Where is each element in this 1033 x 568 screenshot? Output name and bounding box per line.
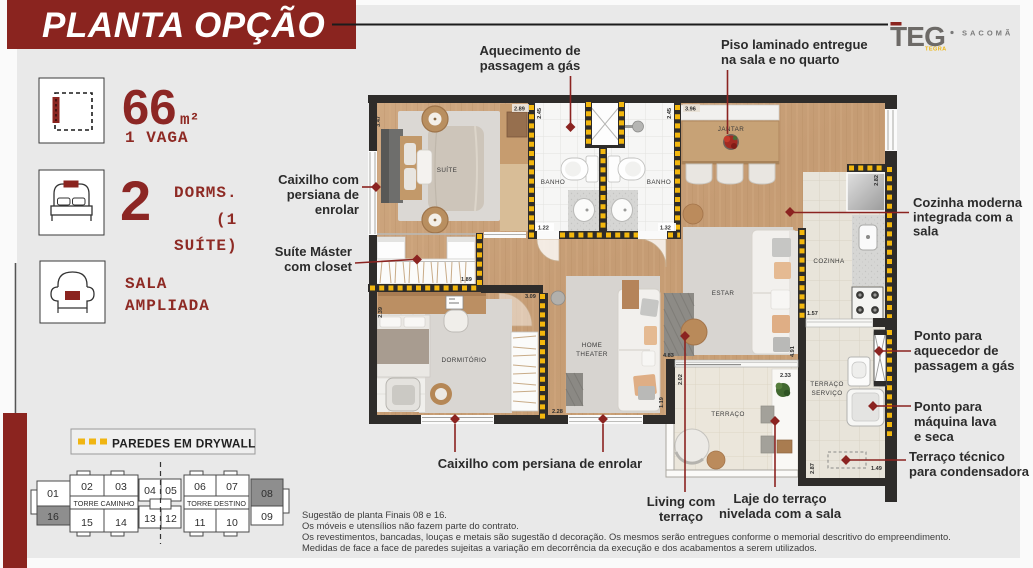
svg-text:Os móveis e utensílios não faz: Os móveis e utensílios não fazem parte d… [302,520,519,531]
svg-text:sala: sala [913,224,939,239]
svg-text:2.02: 2.02 [678,374,684,385]
svg-text:2.39: 2.39 [378,307,384,318]
svg-text:PLANTA OPÇÃO: PLANTA OPÇÃO [42,6,325,45]
svg-text:3.47: 3.47 [376,116,382,127]
svg-text:SUÍTE): SUÍTE) [174,236,238,255]
svg-text:SACOMÃ: SACOMÃ [962,29,1013,38]
svg-text:2.87: 2.87 [810,463,816,474]
svg-text:2.82: 2.82 [874,175,880,186]
svg-text:04: 04 [144,485,156,497]
svg-text:4.91: 4.91 [790,346,796,357]
svg-text:3.96: 3.96 [685,107,696,113]
svg-text:Living com: Living com [647,494,716,509]
svg-text:SALA: SALA [125,275,167,293]
svg-text:05: 05 [165,485,177,497]
svg-text:TORRE DESTINO: TORRE DESTINO [187,499,246,508]
svg-text:2.45: 2.45 [537,108,543,119]
svg-text:TERRAÇO: TERRAÇO [810,381,844,388]
svg-text:com closet: com closet [284,259,353,274]
svg-text:DORMITÓRIO: DORMITÓRIO [442,355,487,364]
svg-text:1.32: 1.32 [660,226,671,232]
svg-text:AMPLIADA: AMPLIADA [125,297,210,315]
svg-text:TORRE CAMINHO: TORRE CAMINHO [74,499,135,508]
svg-text:Piso laminado entregue: Piso laminado entregue [721,37,868,52]
svg-text:Sugestão de planta Finais 08 e: Sugestão de planta Finais 08 e 16. [302,509,447,520]
svg-text:07: 07 [226,481,238,493]
svg-text:e seca: e seca [914,429,955,444]
svg-text:11: 11 [195,517,206,529]
svg-text:aquecedor de: aquecedor de [914,343,999,358]
svg-text:2.28: 2.28 [552,409,563,415]
svg-text:16: 16 [47,511,59,523]
svg-text:Aquecimento de: Aquecimento de [479,43,580,58]
svg-text:14: 14 [115,517,127,529]
svg-text:para condensadora: para condensadora [909,464,1030,479]
svg-text:TERRAÇO: TERRAÇO [711,411,745,418]
svg-text:ESTAR: ESTAR [712,290,735,297]
svg-text:máquina lava: máquina lava [914,414,997,429]
svg-text:12: 12 [165,513,177,525]
svg-text:na sala e no quarto: na sala e no quarto [721,52,840,67]
svg-text:m²: m² [180,111,199,129]
svg-text:2.89: 2.89 [514,107,525,113]
svg-text:JANTAR: JANTAR [718,126,744,133]
svg-text:persiana de: persiana de [287,187,359,202]
svg-text:1.19: 1.19 [659,397,665,408]
svg-text:66: 66 [122,81,177,135]
svg-text:Suíte Máster: Suíte Máster [275,244,352,259]
svg-text:10: 10 [226,517,238,529]
svg-text:13: 13 [144,513,156,525]
svg-text:TEGRA: TEGRA [925,47,947,53]
svg-text:BANHO: BANHO [647,179,671,186]
svg-text:1.22: 1.22 [538,226,549,232]
svg-text:2.45: 2.45 [667,108,673,119]
svg-text:Cozinha moderna: Cozinha moderna [913,195,1023,210]
svg-text:06: 06 [194,481,206,493]
svg-text:SUÍTE: SUÍTE [437,165,458,174]
svg-text:03: 03 [115,481,127,493]
svg-text:2: 2 [120,169,151,232]
svg-text:08: 08 [261,488,273,500]
svg-text:enrolar: enrolar [315,202,359,217]
svg-text:integrada com a: integrada com a [913,210,1013,225]
svg-text:passagem a gás: passagem a gás [914,358,1014,373]
svg-text:2.33: 2.33 [780,373,791,379]
svg-text:4.83: 4.83 [663,353,674,359]
svg-text:(1: (1 [216,211,237,229]
svg-text:Ponto para: Ponto para [914,399,983,414]
svg-text:terraço: terraço [659,509,703,524]
svg-text:1.57: 1.57 [807,311,818,317]
svg-text:Terraço técnico: Terraço técnico [909,449,1005,464]
svg-text:BANHO: BANHO [541,179,565,186]
svg-text:PAREDES EM DRYWALL: PAREDES EM DRYWALL [112,437,256,451]
svg-text:COZINHA: COZINHA [813,258,845,265]
svg-text:3.09: 3.09 [525,294,536,300]
svg-text:THEATER: THEATER [576,351,608,358]
svg-text:1 VAGA: 1 VAGA [125,129,189,147]
svg-text:Medidas de face a face de pare: Medidas de face a face de paredes sujeit… [302,542,817,553]
svg-text:1.89: 1.89 [461,277,472,283]
svg-text:passagem a gás: passagem a gás [480,58,580,73]
svg-text:Caixilho com: Caixilho com [278,172,359,187]
svg-text:1.49: 1.49 [871,466,882,472]
svg-text:Ponto para: Ponto para [914,328,983,343]
svg-text:09: 09 [261,511,273,523]
svg-text:Os revestimentos, bancadas, lo: Os revestimentos, bancadas, louças e met… [302,531,951,542]
svg-text:Laje do terraço: Laje do terraço [733,491,826,506]
svg-text:HOME: HOME [582,342,603,349]
svg-text:02: 02 [81,481,93,493]
svg-text:01: 01 [47,488,59,500]
svg-text:nivelada com a sala: nivelada com a sala [719,506,842,521]
svg-text:15: 15 [81,517,93,529]
svg-text:DORMS.: DORMS. [174,184,238,202]
svg-text:SERVIÇO: SERVIÇO [811,390,842,397]
svg-text:Caixilho com persiana de enrol: Caixilho com persiana de enrolar [438,456,642,471]
